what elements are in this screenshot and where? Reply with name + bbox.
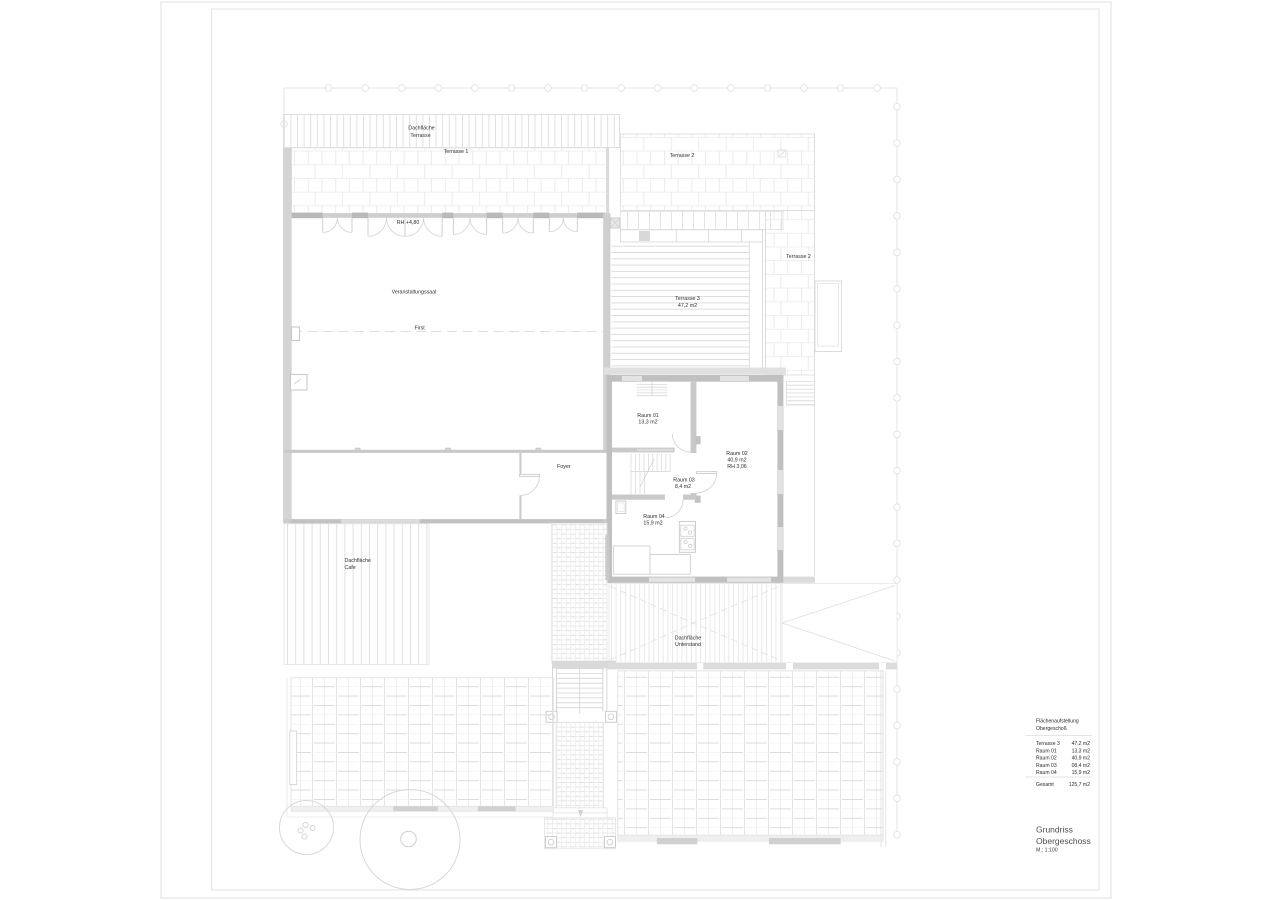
svg-text:Raum 01: Raum 01 bbox=[637, 413, 659, 419]
svg-text:47,2 m2: 47,2 m2 bbox=[1072, 741, 1091, 747]
svg-text:Raum 03: Raum 03 bbox=[1036, 763, 1057, 769]
svg-text:15,9 m2: 15,9 m2 bbox=[1072, 770, 1091, 776]
svg-text:08,4 m2: 08,4 m2 bbox=[1072, 763, 1091, 769]
svg-text:Raum 02: Raum 02 bbox=[726, 451, 748, 457]
svg-text:Terrasse: Terrasse bbox=[410, 133, 430, 139]
svg-text:125,7 m2: 125,7 m2 bbox=[1069, 782, 1090, 788]
svg-text:Raum 04: Raum 04 bbox=[1036, 770, 1057, 776]
svg-text:Terrasse 2: Terrasse 2 bbox=[786, 254, 811, 260]
svg-text:Dachfläche: Dachfläche bbox=[408, 126, 435, 132]
svg-text:Gesamt: Gesamt bbox=[1036, 782, 1054, 788]
svg-text:Raum 04: Raum 04 bbox=[643, 514, 665, 520]
svg-text:M.: 1:100: M.: 1:100 bbox=[1036, 848, 1058, 854]
svg-text:Flächenaufstellung: Flächenaufstellung bbox=[1036, 719, 1079, 725]
svg-text:Terrasse 3: Terrasse 3 bbox=[1036, 741, 1060, 747]
svg-text:Obergeschoß: Obergeschoß bbox=[1036, 726, 1067, 732]
svg-text:Raum 02: Raum 02 bbox=[1036, 756, 1057, 762]
svg-text:47,2 m2: 47,2 m2 bbox=[678, 303, 697, 309]
svg-text:Unterstand: Unterstand bbox=[675, 642, 701, 648]
svg-text:Dachfläche: Dachfläche bbox=[675, 635, 702, 641]
svg-text:Veranstaltungssaal: Veranstaltungssaal bbox=[392, 289, 437, 295]
svg-text:Terrasse 2: Terrasse 2 bbox=[670, 153, 695, 159]
svg-text:Cafe: Cafe bbox=[345, 565, 356, 571]
svg-text:8,4 m2: 8,4 m2 bbox=[675, 484, 691, 490]
svg-text:13,3 m2: 13,3 m2 bbox=[638, 419, 657, 425]
svg-text:15,9 m2: 15,9 m2 bbox=[643, 521, 662, 527]
svg-text:Dachfläche: Dachfläche bbox=[345, 558, 372, 564]
svg-text:Raum 03: Raum 03 bbox=[673, 478, 695, 484]
svg-text:Raum 01: Raum 01 bbox=[1036, 748, 1057, 754]
svg-text:Terrasse 3: Terrasse 3 bbox=[675, 296, 700, 302]
svg-text:RH +4,80: RH +4,80 bbox=[397, 220, 420, 226]
svg-text:Grundriss: Grundriss bbox=[1036, 825, 1073, 835]
svg-text:40,9 m2: 40,9 m2 bbox=[727, 457, 746, 463]
svg-text:13,3 m2: 13,3 m2 bbox=[1072, 748, 1091, 754]
svg-text:Terrasse 1: Terrasse 1 bbox=[444, 149, 469, 155]
svg-text:40,9 m2: 40,9 m2 bbox=[1072, 756, 1091, 762]
svg-text:First: First bbox=[414, 326, 425, 332]
svg-text:Obergeschoss: Obergeschoss bbox=[1036, 836, 1091, 846]
svg-text:Foyer: Foyer bbox=[557, 464, 571, 470]
svg-text:RH 3,06: RH 3,06 bbox=[727, 464, 746, 470]
